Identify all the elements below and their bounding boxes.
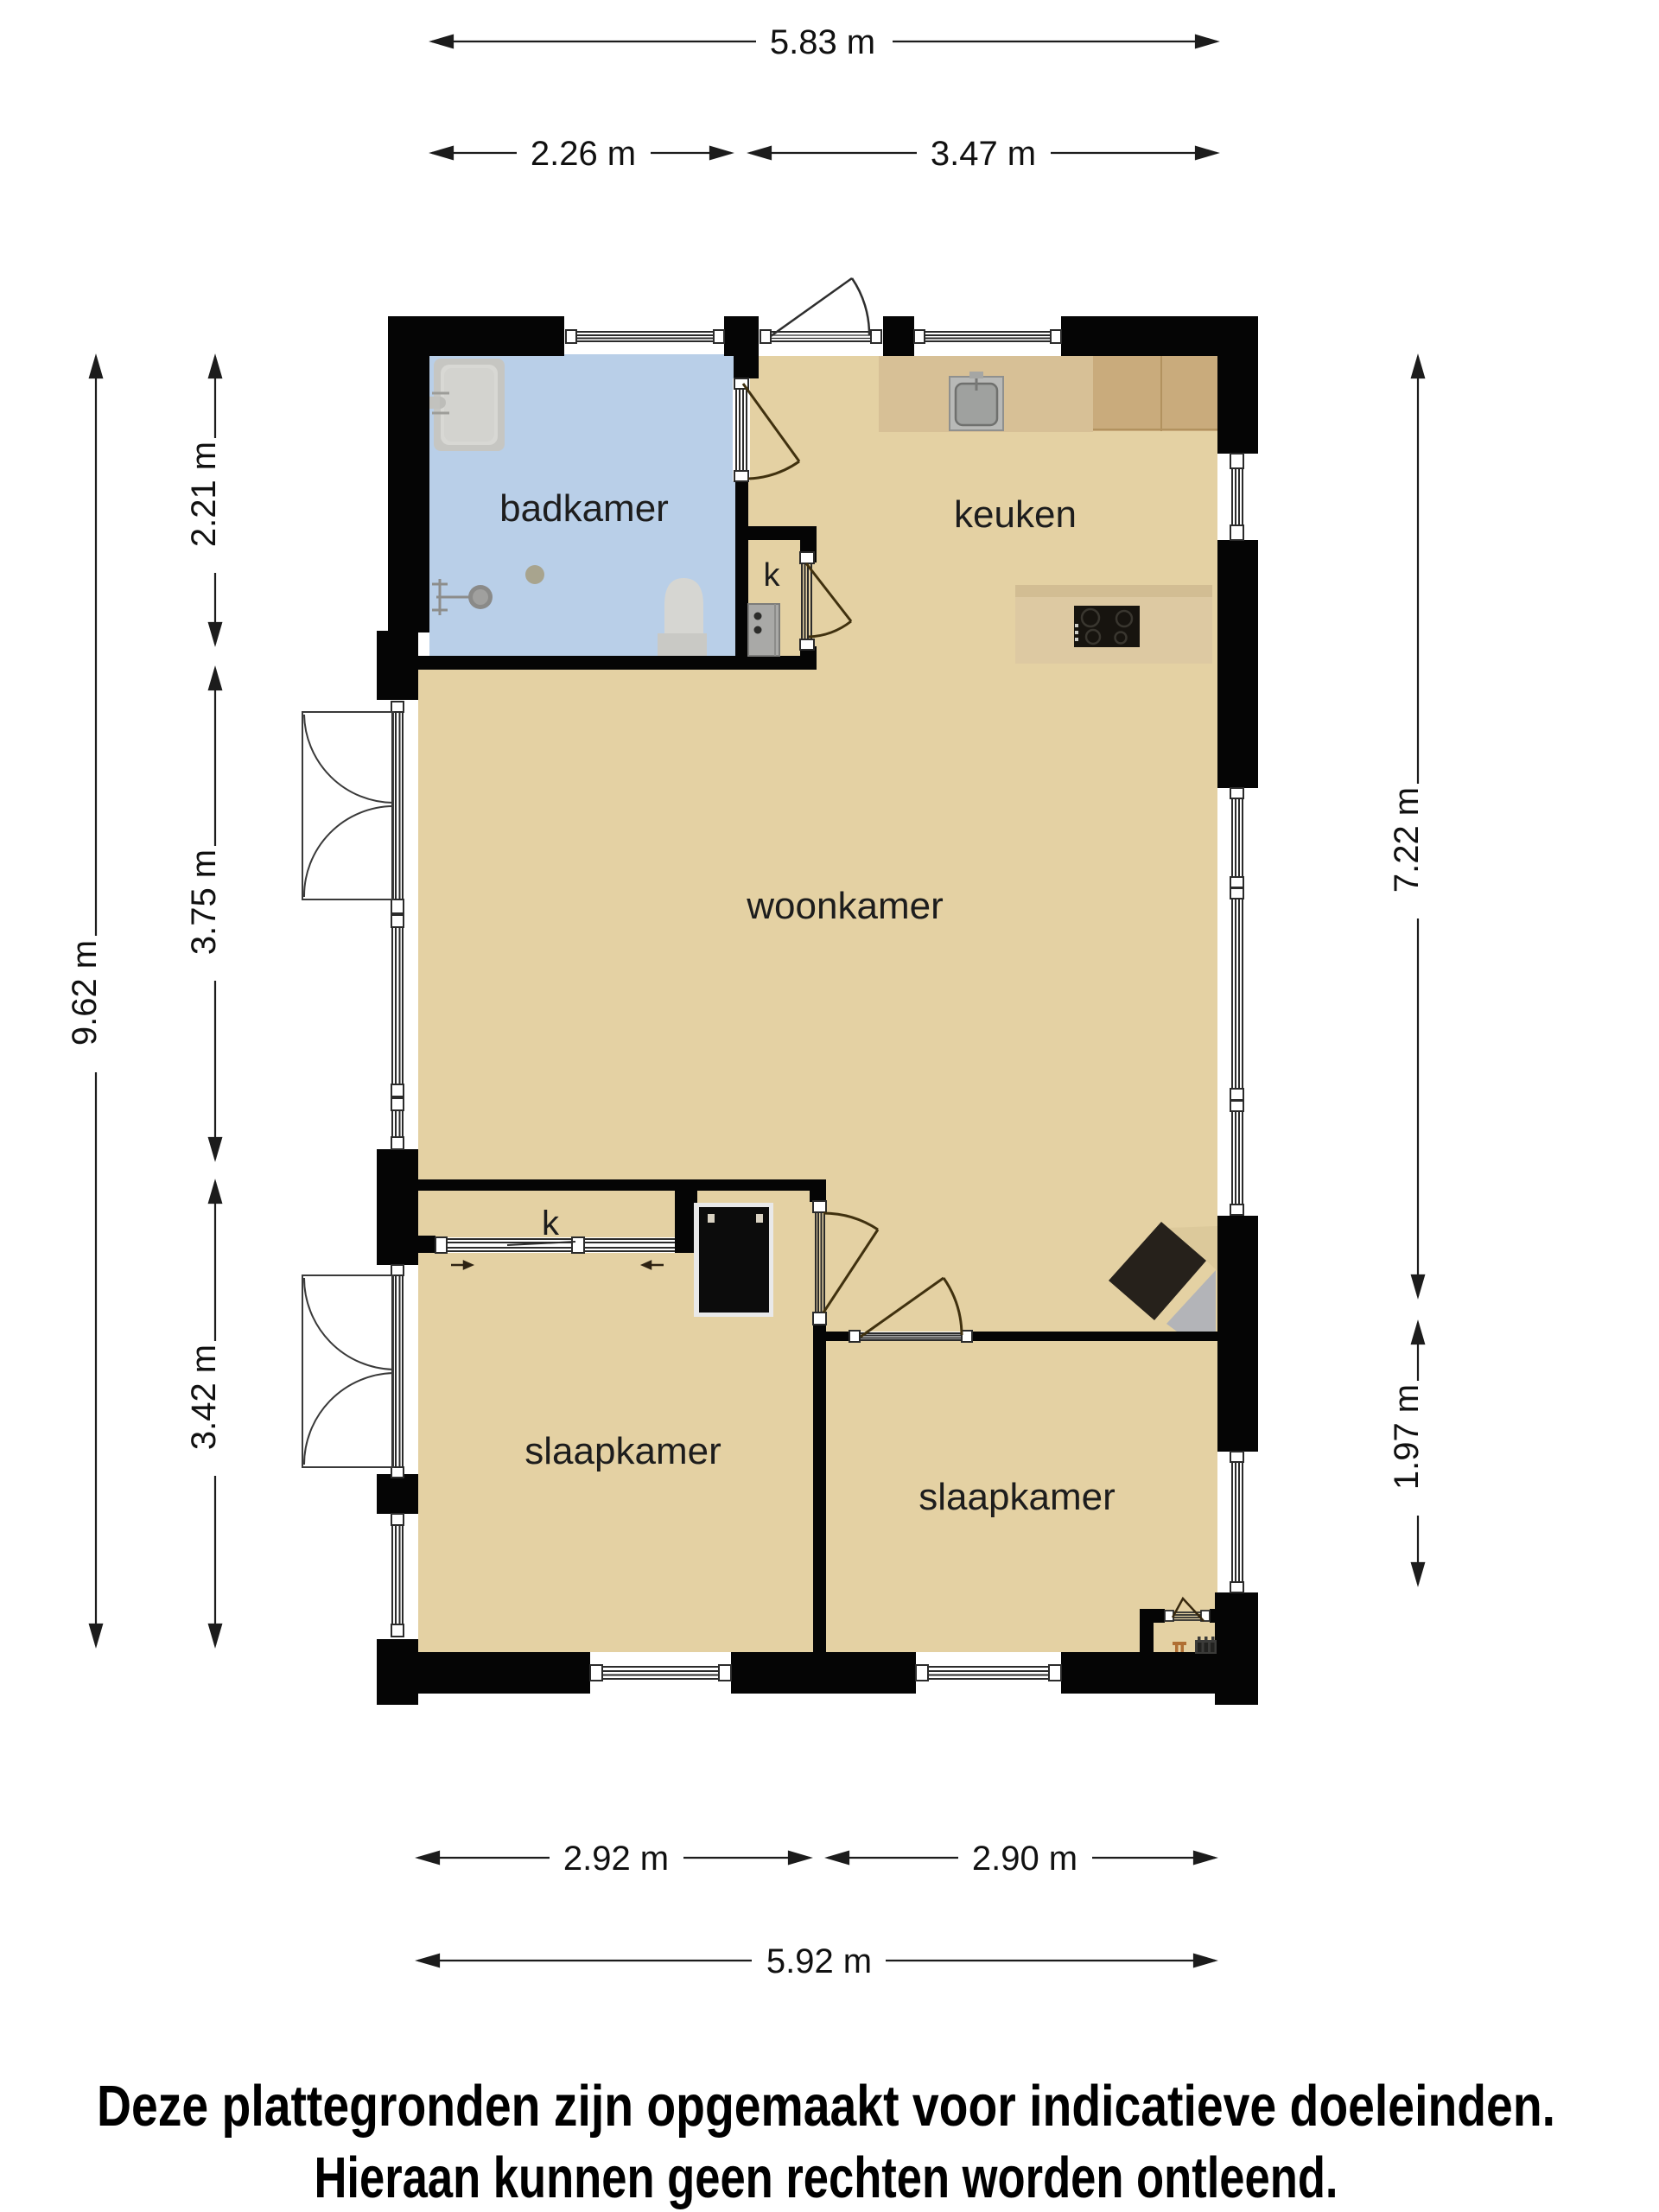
svg-text:badkamer: badkamer	[499, 487, 669, 530]
svg-text:5.92 m: 5.92 m	[766, 1942, 872, 1980]
svg-text:1.97 m: 1.97 m	[1388, 1384, 1426, 1490]
svg-text:3.42 m: 3.42 m	[185, 1344, 223, 1450]
svg-text:k: k	[764, 557, 781, 594]
svg-text:5.83 m: 5.83 m	[770, 23, 875, 61]
svg-text:3.75 m: 3.75 m	[185, 849, 223, 955]
svg-text:Hieraan kunnen geen rechten wo: Hieraan kunnen geen rechten worden ontle…	[315, 2145, 1338, 2210]
svg-text:k: k	[542, 1205, 560, 1243]
svg-text:2.26 m: 2.26 m	[531, 135, 636, 173]
svg-text:keuken: keuken	[954, 493, 1077, 536]
svg-text:2.90 m: 2.90 m	[972, 1840, 1077, 1878]
svg-text:Deze plattegronden zijn opgema: Deze plattegronden zijn opgemaakt voor i…	[97, 2074, 1555, 2139]
svg-text:woonkamer: woonkamer	[746, 885, 943, 927]
svg-text:7.22 m: 7.22 m	[1388, 787, 1426, 893]
svg-text:2.92 m: 2.92 m	[563, 1840, 669, 1878]
svg-text:9.62 m: 9.62 m	[66, 940, 104, 1046]
svg-text:slaapkamer: slaapkamer	[524, 1430, 721, 1472]
svg-text:3.47 m: 3.47 m	[931, 135, 1036, 173]
svg-text:2.21 m: 2.21 m	[185, 442, 223, 547]
svg-text:slaapkamer: slaapkamer	[918, 1476, 1115, 1518]
